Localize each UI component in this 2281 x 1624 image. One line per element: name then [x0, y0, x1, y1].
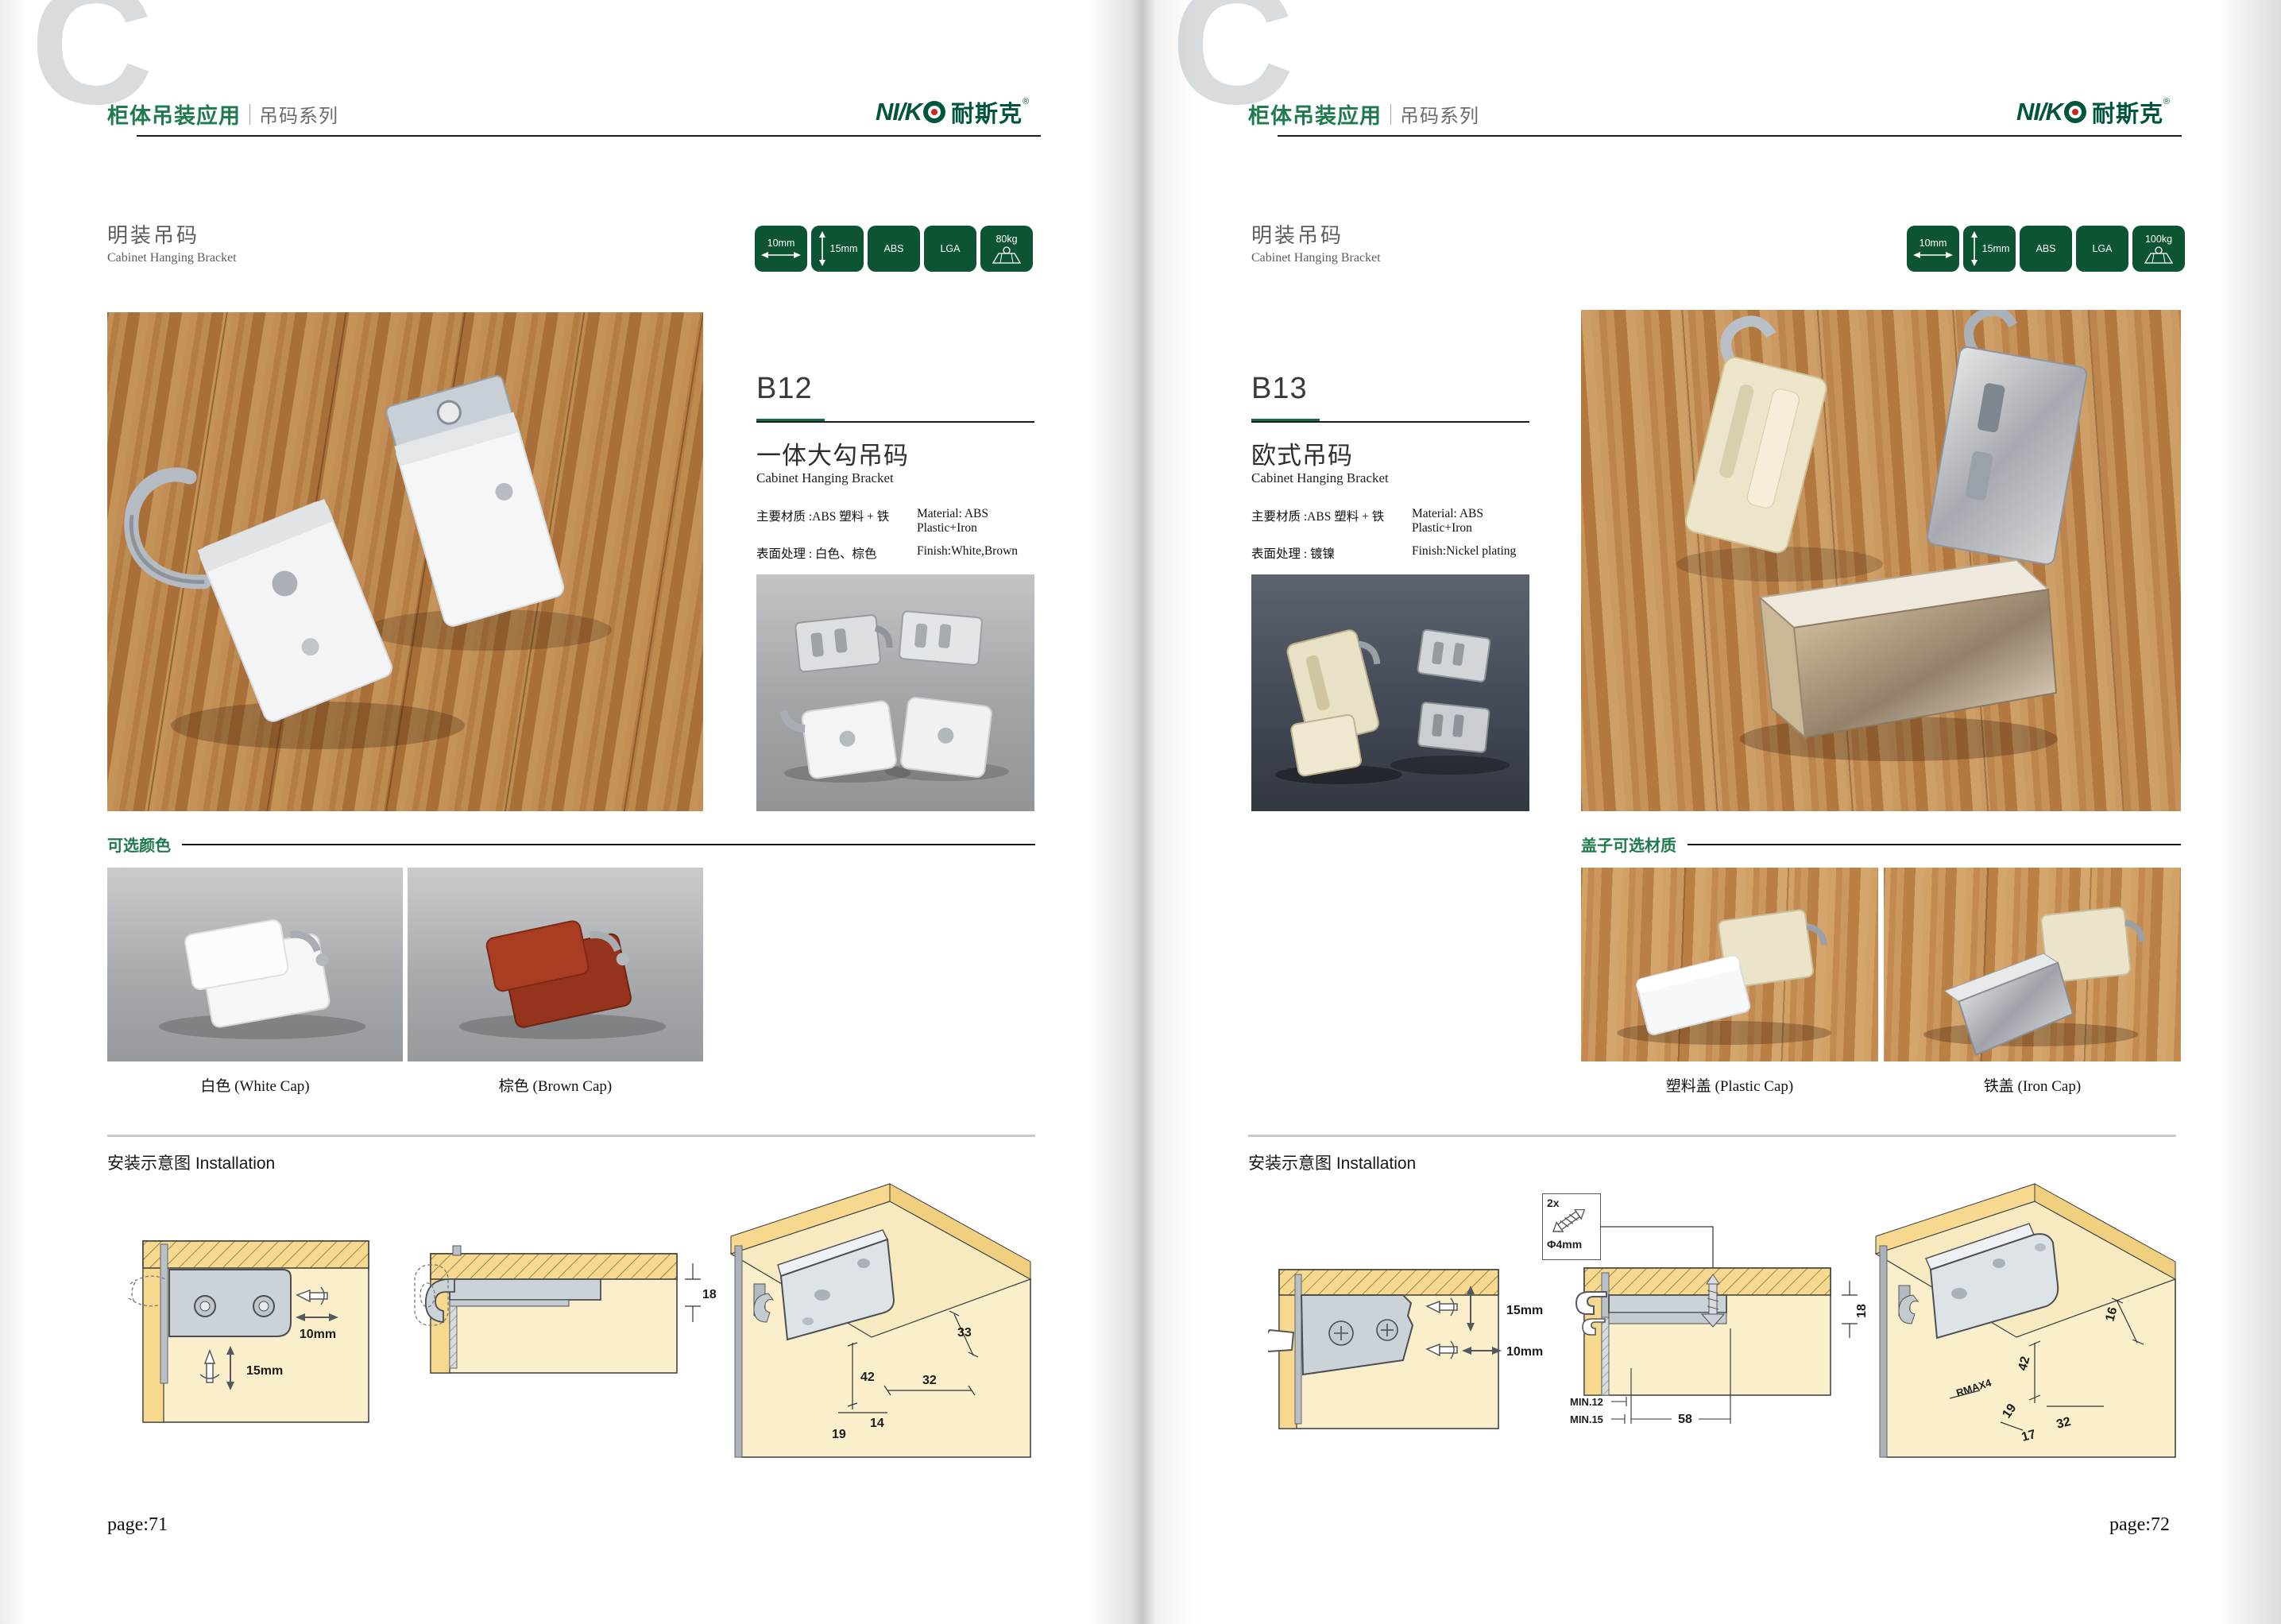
spec-finish-en: Finish:Nickel plating [1412, 544, 1539, 562]
page-header: 柜体吊装应用 吊码系列 [107, 99, 338, 130]
registered-mark: ® [2163, 97, 2170, 106]
logo-red-dot-icon [931, 109, 938, 115]
badge-load: 80kg [980, 226, 1033, 272]
product-name-cn: 欧式吊码 [1251, 435, 1353, 471]
page-header: 柜体吊装应用 吊码系列 [1248, 99, 1479, 130]
badge-material: ABS [868, 226, 920, 272]
badge-cert: LGA [924, 226, 976, 272]
header-divider [1390, 104, 1391, 125]
svg-text:15mm: 15mm [1506, 1304, 1543, 1317]
spec-finish-row: 表面处理 : 白色、棕色 Finish:White,Brown [756, 544, 1044, 562]
page-right: C 柜体吊装应用 吊码系列 NI/K 耐斯克 ® 明装吊码 Cabinet Ha… [1141, 0, 2281, 1624]
installation-diagram-section: 18 [413, 1233, 719, 1392]
installation-heading: 安装示意图 Installation [1248, 1150, 1416, 1174]
product-photo-detail [756, 574, 1034, 811]
installation-diagram-section: 18 MIN.12 MIN.15 58 [1570, 1257, 1876, 1444]
header-rule [137, 135, 1041, 137]
screw-quantity: 2x [1547, 1197, 1596, 1209]
installation-heading: 安装示意图 Installation [107, 1150, 275, 1174]
white-cap-illustration [107, 868, 403, 1061]
brand-logo-cn: 耐斯克 [951, 95, 1023, 129]
options-heading: 可选颜色 [107, 833, 171, 856]
screw-diameter: Φ4mm [1547, 1238, 1596, 1251]
svg-text:32: 32 [922, 1374, 937, 1387]
options-rule [182, 844, 1035, 845]
product-photo-detail [1251, 574, 1529, 811]
plastic-cap-illustration [1581, 868, 1878, 1061]
header-title: 柜体吊装应用 [107, 99, 241, 130]
code-rule [756, 421, 1034, 423]
installation-rule [1248, 1135, 2176, 1137]
option-photo-plastic [1581, 868, 1878, 1061]
spec-material-row: 主要材质 :ABS 塑料 + 铁 Material: ABS Plastic+I… [756, 507, 1044, 536]
white-brackets-illustration [107, 312, 703, 811]
spec-finish-cn: 表面处理 : 镀镍 [1251, 544, 1401, 562]
svg-text:58: 58 [1678, 1413, 1692, 1426]
brown-cap-illustration [408, 868, 703, 1061]
spec-badges: 10mm 15mm ABS LGA 100kg [1907, 226, 2185, 272]
logo-red-dot-icon [2072, 109, 2078, 115]
svg-text:10mm: 10mm [1506, 1345, 1543, 1359]
installation-rule [107, 1135, 1035, 1137]
spec-material-en: Material: ABS Plastic+Iron [1412, 507, 1539, 536]
option-photo-brown [408, 868, 703, 1061]
svg-text:MIN.15: MIN.15 [1570, 1413, 1603, 1425]
svg-text:19: 19 [832, 1428, 846, 1441]
spec-finish-cn: 表面处理 : 白色、棕色 [756, 544, 906, 562]
screw-spec-box: 2x Φ4mm [1542, 1193, 1601, 1260]
arrow-horizontal-icon [1913, 250, 1953, 260]
product-specs: 主要材质 :ABS 塑料 + 铁 Material: ABS Plastic+I… [1251, 507, 1539, 570]
section-title-en: Cabinet Hanging Bracket [1251, 251, 1381, 265]
logo-o-mark [2064, 101, 2086, 123]
spec-material-cn: 主要材质 :ABS 塑料 + 铁 [756, 507, 906, 536]
badge-height: 15mm [1963, 226, 2016, 272]
installation-diagram-perspective: 33 42 32 14 19 [719, 1174, 1037, 1467]
brand-logo-latin: NI/K [2016, 98, 2063, 126]
product-name-en: Cabinet Hanging Bracket [756, 470, 894, 486]
options-heading-row: 盖子可选材质 [1581, 833, 2181, 856]
option-photo-iron [1884, 868, 2181, 1061]
product-name-cn: 一体大勾吊码 [756, 435, 909, 471]
spec-finish-en: Finish:White,Brown [917, 544, 1044, 562]
section-title-en: Cabinet Hanging Bracket [107, 251, 237, 265]
options-heading: 盖子可选材质 [1581, 833, 1676, 856]
option-photo-white [107, 868, 403, 1061]
svg-text:14: 14 [870, 1417, 884, 1430]
page-number: page:72 [2109, 1514, 2170, 1536]
spec-badges: 10mm 15mm ABS LGA 80kg [755, 226, 1033, 272]
option-caption-plastic: 塑料盖 (Plastic Cap) [1581, 1074, 1878, 1096]
badge-width: 10mm [1907, 226, 1959, 272]
header-series: 吊码系列 [1400, 100, 1479, 128]
section-title-cn: 明装吊码 [107, 219, 199, 249]
spec-material-row: 主要材质 :ABS 塑料 + 铁 Material: ABS Plastic+I… [1251, 507, 1539, 536]
product-specs: 主要材质 :ABS 塑料 + 铁 Material: ABS Plastic+I… [756, 507, 1044, 570]
load-capacity-icon [990, 246, 1023, 264]
badge-width: 10mm [755, 226, 807, 272]
load-capacity-icon [2142, 246, 2175, 264]
arrow-horizontal-icon [761, 250, 801, 260]
logo-o-mark [923, 101, 945, 123]
options-rule [1688, 844, 2181, 845]
product-code: B12 [756, 372, 813, 406]
nickel-brackets-illustration [1581, 310, 2181, 811]
brand-logo-latin: NI/K [876, 98, 922, 126]
page-left: C 柜体吊装应用 吊码系列 NI/K 耐斯克 ® 明装吊码 Cabinet Ha… [0, 0, 1140, 1624]
option-caption-iron: 铁盖 (Iron Cap) [1884, 1074, 2181, 1096]
catalog-spread: C 柜体吊装应用 吊码系列 NI/K 耐斯克 ® 明装吊码 Cabinet Ha… [0, 0, 2281, 1624]
page-number: page:71 [107, 1514, 168, 1536]
options-heading-row: 可选颜色 [107, 833, 1035, 856]
spec-material-cn: 主要材质 :ABS 塑料 + 铁 [1251, 507, 1401, 536]
bracket-parts-illustration [1251, 574, 1529, 811]
installation-diagram-perspective: 16 42 RMAX4 19 17 32 [1864, 1174, 2182, 1467]
badge-material: ABS [2020, 226, 2072, 272]
svg-text:42: 42 [860, 1371, 875, 1384]
brand-logo-cn: 耐斯克 [2092, 95, 2163, 129]
registered-mark: ® [1023, 97, 1029, 106]
product-code: B13 [1251, 372, 1308, 406]
spec-material-en: Material: ABS Plastic+Iron [917, 507, 1044, 536]
product-photo-main [107, 312, 703, 811]
svg-text:33: 33 [957, 1326, 972, 1340]
code-rule [1251, 421, 1529, 423]
badge-height: 15mm [811, 226, 864, 272]
svg-text:15mm: 15mm [246, 1364, 283, 1378]
arrow-vertical-icon [1970, 231, 1979, 266]
installation-diagram-adjustment: 10mm 15mm [127, 1232, 381, 1432]
installation-diagram-adjustment: 15mm 10mm [1268, 1257, 1554, 1444]
arrow-vertical-icon [818, 231, 827, 266]
section-title-cn: 明装吊码 [1251, 219, 1343, 249]
header-divider [249, 104, 250, 125]
product-name-en: Cabinet Hanging Bracket [1251, 470, 1389, 486]
header-series: 吊码系列 [259, 100, 338, 128]
svg-text:18: 18 [702, 1288, 717, 1301]
header-rule [1278, 135, 2182, 137]
badge-load: 100kg [2132, 226, 2185, 272]
screw-icon [1547, 1209, 1596, 1238]
bracket-parts-illustration [756, 574, 1034, 811]
header-title: 柜体吊装应用 [1248, 99, 1382, 130]
svg-text:MIN.12: MIN.12 [1570, 1396, 1603, 1408]
iron-cap-illustration [1884, 868, 2181, 1061]
brand-logo: NI/K 耐斯克 ® [2016, 95, 2170, 129]
svg-text:10mm: 10mm [300, 1328, 336, 1341]
spec-finish-row: 表面处理 : 镀镍 Finish:Nickel plating [1251, 544, 1539, 562]
option-caption-white: 白色 (White Cap) [107, 1074, 403, 1096]
brand-logo: NI/K 耐斯克 ® [876, 95, 1029, 129]
option-caption-brown: 棕色 (Brown Cap) [408, 1074, 703, 1096]
product-photo-main [1581, 310, 2181, 811]
badge-cert: LGA [2076, 226, 2128, 272]
